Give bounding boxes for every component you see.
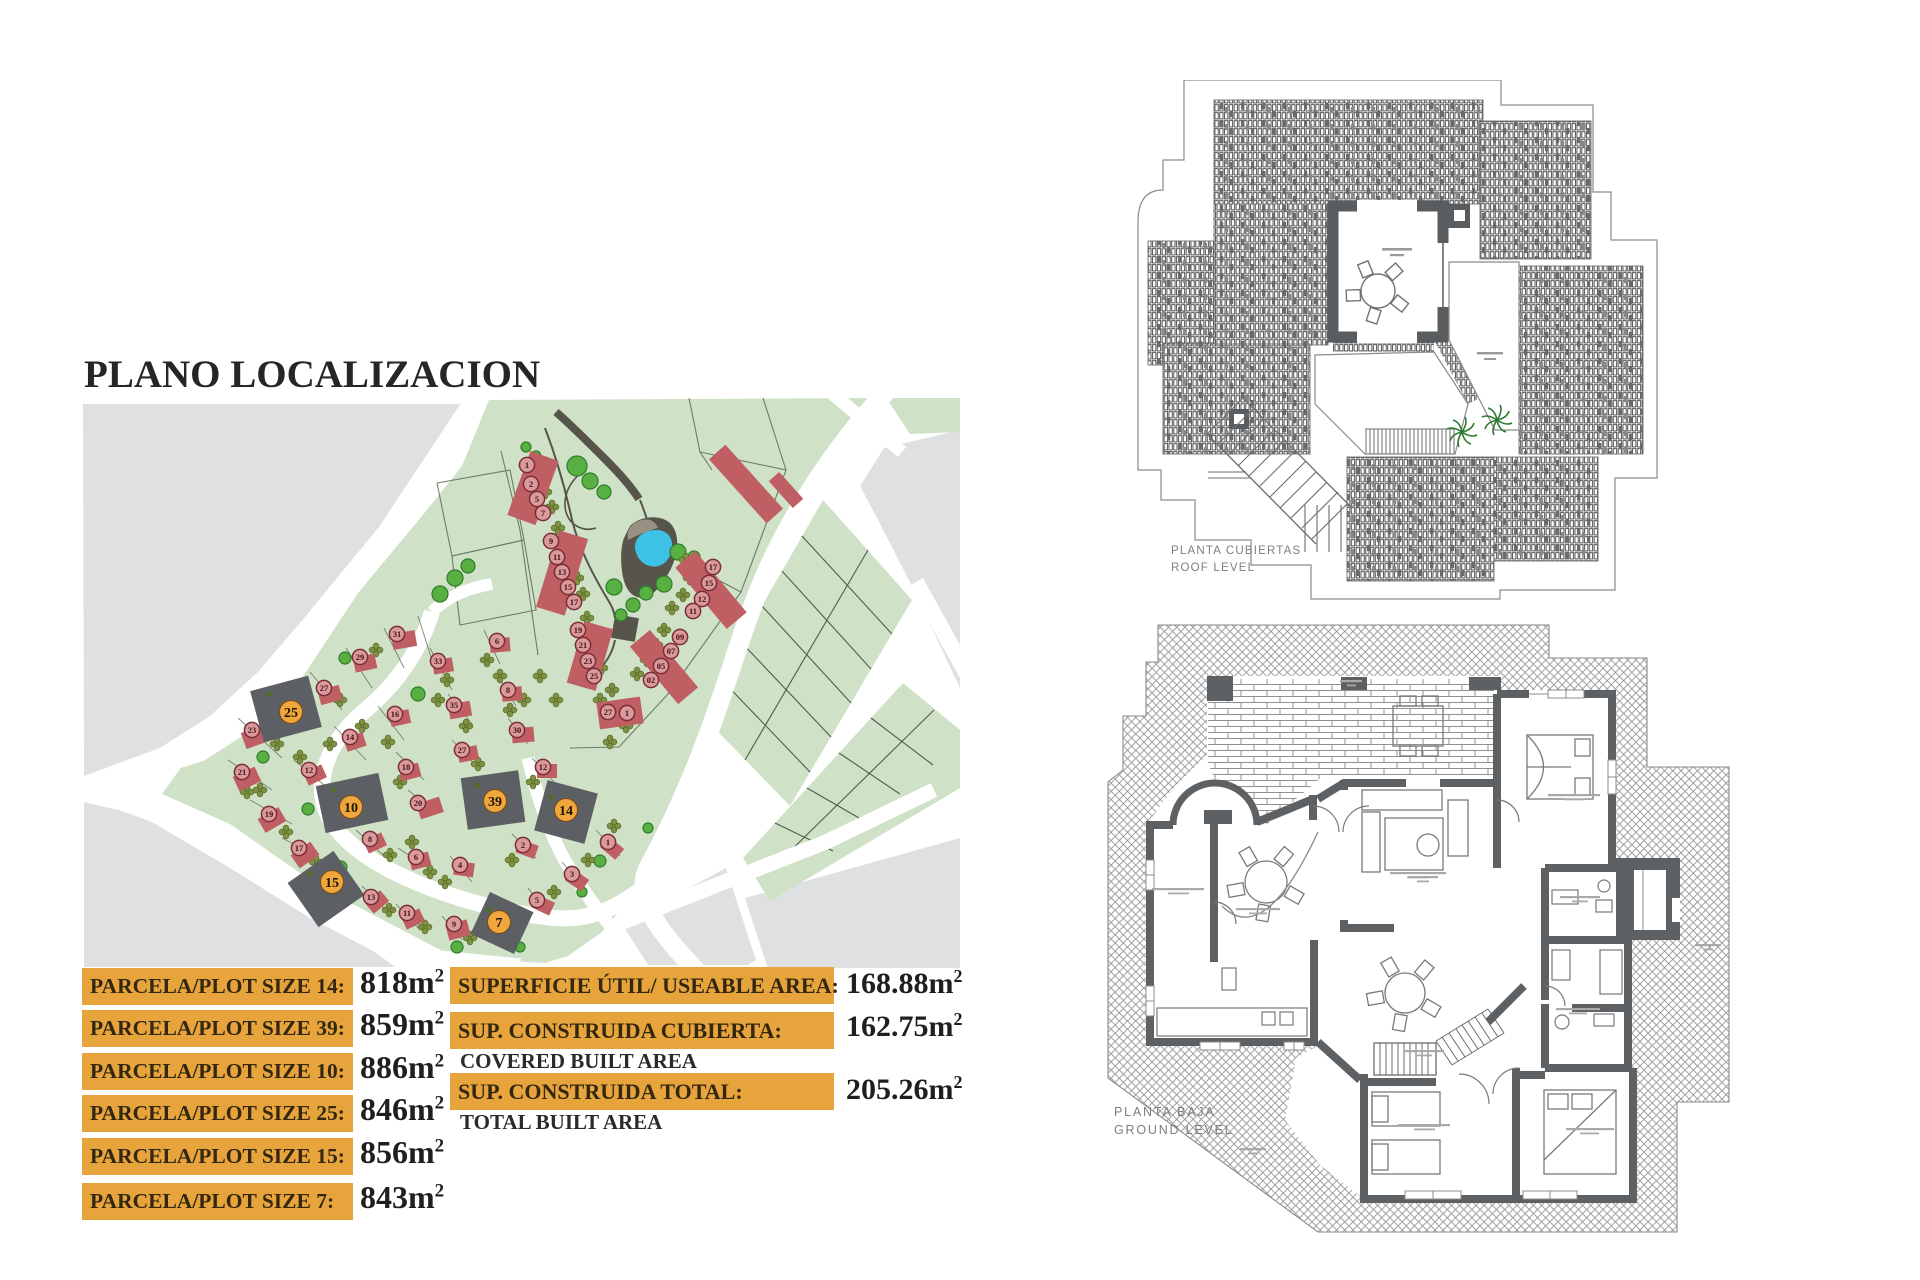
svg-text:21: 21: [579, 640, 588, 650]
svg-text:9: 9: [452, 919, 456, 929]
svg-text:9: 9: [549, 536, 553, 546]
svg-text:12: 12: [539, 762, 548, 772]
svg-text:07: 07: [667, 646, 676, 656]
svg-text:2: 2: [529, 479, 533, 489]
svg-text:15: 15: [705, 578, 714, 588]
svg-text:33: 33: [434, 656, 443, 666]
svg-text:02: 02: [647, 675, 656, 685]
svg-text:17: 17: [709, 562, 718, 572]
svg-text:11: 11: [403, 908, 411, 918]
svg-text:39: 39: [488, 795, 502, 810]
svg-text:20: 20: [414, 798, 423, 808]
svg-text:14: 14: [559, 804, 573, 819]
svg-text:25: 25: [590, 671, 599, 681]
svg-text:35: 35: [450, 700, 459, 710]
svg-text:11: 11: [553, 552, 561, 562]
svg-text:1: 1: [606, 837, 610, 847]
svg-text:12: 12: [305, 765, 314, 775]
svg-text:25: 25: [284, 706, 298, 721]
svg-text:6: 6: [414, 852, 418, 862]
svg-text:21: 21: [238, 767, 247, 777]
svg-text:12: 12: [698, 594, 707, 604]
svg-text:15: 15: [564, 582, 573, 592]
svg-text:8: 8: [368, 834, 372, 844]
svg-text:17: 17: [570, 597, 579, 607]
svg-text:5: 5: [535, 494, 539, 504]
svg-text:31: 31: [393, 629, 402, 639]
svg-text:19: 19: [574, 625, 583, 635]
svg-text:09: 09: [676, 632, 685, 642]
svg-text:18: 18: [402, 762, 411, 772]
svg-text:13: 13: [558, 567, 567, 577]
svg-text:5: 5: [535, 895, 539, 905]
svg-text:1: 1: [525, 460, 529, 470]
svg-text:16: 16: [391, 709, 400, 719]
svg-text:6: 6: [495, 636, 499, 646]
svg-text:30: 30: [513, 725, 522, 735]
svg-text:15: 15: [325, 876, 339, 891]
svg-text:23: 23: [248, 725, 257, 735]
svg-text:14: 14: [346, 732, 355, 742]
svg-text:13: 13: [367, 892, 376, 902]
svg-text:7: 7: [496, 916, 503, 931]
svg-text:27: 27: [320, 683, 329, 693]
svg-text:27: 27: [458, 745, 467, 755]
svg-text:19: 19: [265, 809, 274, 819]
svg-text:3: 3: [570, 869, 574, 879]
svg-text:1: 1: [625, 708, 629, 718]
svg-text:2: 2: [521, 840, 525, 850]
svg-text:05: 05: [657, 661, 666, 671]
svg-text:27: 27: [604, 707, 613, 717]
svg-text:17: 17: [295, 843, 304, 853]
svg-text:23: 23: [584, 656, 593, 666]
svg-text:10: 10: [344, 801, 358, 816]
svg-text:29: 29: [356, 652, 365, 662]
svg-text:11: 11: [689, 606, 697, 616]
svg-text:8: 8: [506, 685, 510, 695]
